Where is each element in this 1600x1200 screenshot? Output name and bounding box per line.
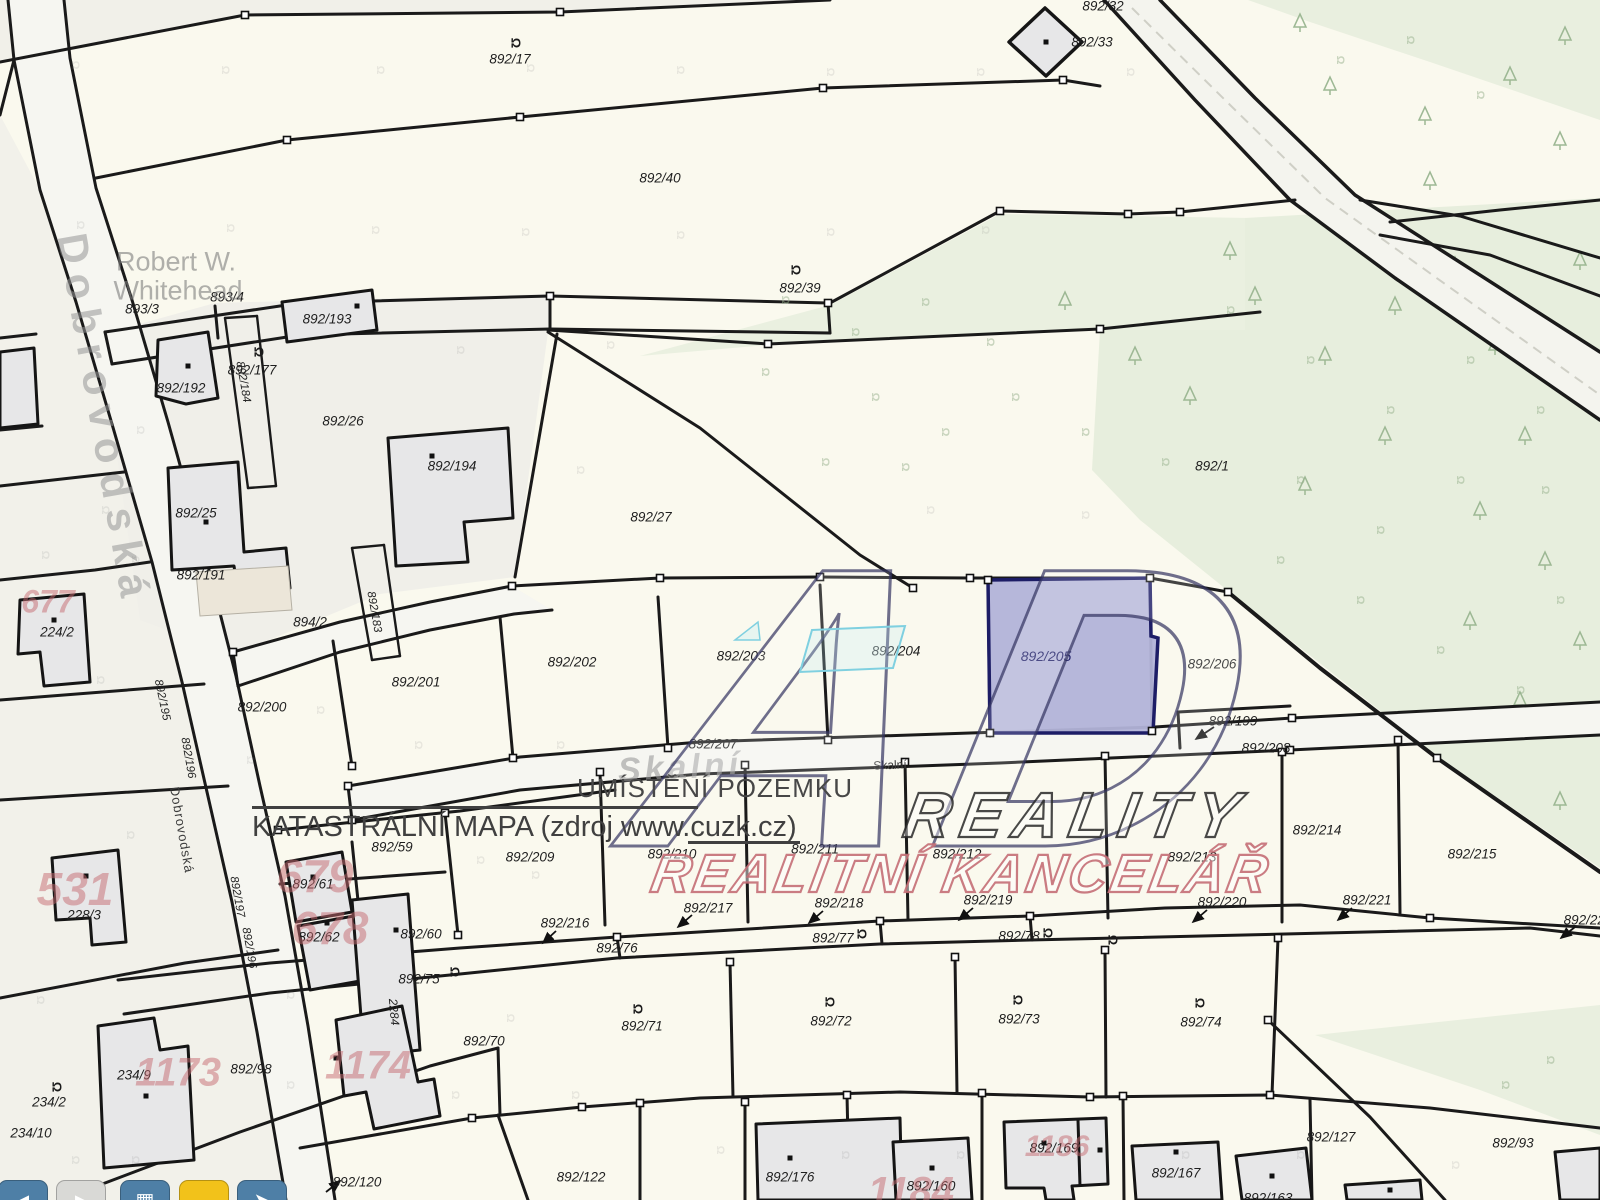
note-overline [252,806,698,809]
pan-button[interactable]: ➤ [237,1180,287,1200]
layers-button[interactable]: ▦ [120,1180,170,1200]
source-note: KATASTRÁLNÍ MAPA (zdroj www.cuzk.cz) [252,811,797,844]
note-underscore [688,841,800,844]
placement-note: UMÍSTĚNÍ POZEMKU [577,773,853,804]
map-canvas[interactable]: 892/17892/32892/33892/40892/39892/1893/3… [0,0,1600,1200]
forward-button[interactable]: ► [56,1180,106,1200]
highlight-button[interactable] [179,1180,229,1200]
back-button[interactable]: ◄ [0,1180,48,1200]
watermark-cyan-shapes [0,0,1600,1200]
